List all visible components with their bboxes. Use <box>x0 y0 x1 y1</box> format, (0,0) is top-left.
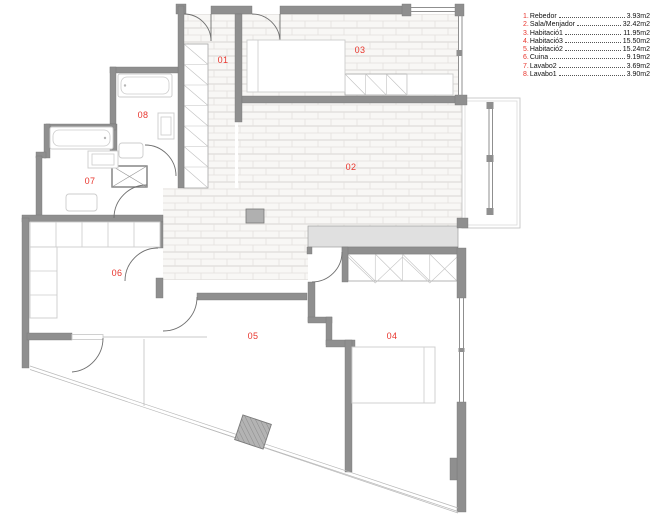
sink-lavabo1 <box>158 113 174 139</box>
legend-leader-dots <box>565 34 621 35</box>
legend: 1.Rebedor3.93m22.Sala/Menjador32.42m23.H… <box>523 13 650 79</box>
door-habitacio2 <box>163 297 197 331</box>
glazing-mullion-1 <box>487 102 494 109</box>
wall-col-e2 <box>457 218 468 228</box>
legend-leader-dots <box>559 67 625 68</box>
pillar-sala <box>246 209 264 223</box>
wall-04-right-upper <box>457 248 466 298</box>
legend-item-area: 9.19m2 <box>627 54 650 62</box>
room-label-06: 06 <box>112 268 123 278</box>
legend-item-area: 15.24m2 <box>623 46 650 54</box>
legend-row: 5.Habitació215.24m2 <box>523 46 650 54</box>
room-label-07: 07 <box>85 176 96 186</box>
legend-item-area: 3.69m2 <box>627 63 650 71</box>
legend-item-name: Lavabo1 <box>530 71 557 79</box>
room-label-08: 08 <box>138 110 149 120</box>
window-06-sill <box>72 335 103 340</box>
wall-08-top <box>110 67 178 73</box>
legend-leader-dots <box>565 50 621 51</box>
door-lavabo1 <box>145 145 176 176</box>
wall-06-top <box>22 215 163 222</box>
door-gallery <box>72 338 103 372</box>
wall-06-left <box>22 218 29 368</box>
wall-band-stub <box>307 247 312 254</box>
legend-item-number: 5. <box>523 46 529 54</box>
legend-leader-dots <box>559 75 625 76</box>
legend-item-area: 11.95m2 <box>623 30 650 38</box>
legend-item-name: Lavabo2 <box>530 63 557 71</box>
glazing-mullion-2 <box>487 155 494 162</box>
sink-lavabo2 <box>88 151 118 168</box>
legend-item-name: Habitació3 <box>530 38 563 46</box>
legend-item-name: Rebedor <box>530 13 557 21</box>
wall-04-right-lower <box>457 402 466 512</box>
bed-habitacio3 <box>352 347 435 403</box>
wall-06-right-b <box>156 278 163 298</box>
wall-05-top <box>197 293 307 300</box>
floor-tiles-corridor <box>208 44 235 188</box>
toilet-lavabo1 <box>119 143 143 158</box>
legend-item-number: 2. <box>523 21 529 29</box>
floor-tiles-passage <box>163 226 308 280</box>
wall-vestibule-left <box>308 282 315 322</box>
closet-rebedor <box>184 44 208 188</box>
wall-band-main <box>342 247 458 254</box>
room-label-02: 02 <box>346 162 357 172</box>
legend-item-area: 3.90m2 <box>627 71 650 79</box>
legend-row: 1.Rebedor3.93m2 <box>523 13 650 21</box>
legend-item-area: 32.42m2 <box>623 21 650 29</box>
wall-top-1 <box>211 6 252 14</box>
wall-col-ne <box>455 4 464 16</box>
bed-habitacio1 <box>247 40 345 92</box>
floor-tiles-rebedor <box>184 14 235 44</box>
wall-08-left <box>110 67 116 129</box>
window-top <box>411 8 455 12</box>
floor-plan-page: 0102030405060708 1.Rebedor3.93m22.Sala/M… <box>0 0 655 516</box>
bathtub-lavabo1 <box>118 74 172 97</box>
legend-item-name: Sala/Menjador <box>530 21 575 29</box>
bathtub-lavabo2 <box>50 127 113 149</box>
legend-row: 2.Sala/Menjador32.42m2 <box>523 21 650 29</box>
legend-rows: 1.Rebedor3.93m22.Sala/Menjador32.42m23.H… <box>523 13 650 79</box>
legend-item-name: Habitació1 <box>530 30 563 38</box>
legend-row: 8.Lavabo13.90m2 <box>523 71 650 79</box>
closet-habitacio1 <box>345 74 453 95</box>
legend-item-name: Habitació2 <box>530 46 563 54</box>
floor-tiles-sala <box>238 103 488 226</box>
floor-tiles-hall <box>163 188 238 226</box>
wall-col-e1 <box>455 95 467 105</box>
wall-vestibule-right <box>342 247 348 282</box>
wall-col-top <box>402 4 411 16</box>
legend-leader-dots <box>550 58 625 59</box>
service-shaft <box>112 166 147 187</box>
legend-leader-dots <box>565 42 621 43</box>
glazing-mullion-3 <box>487 208 494 215</box>
legend-leader-dots <box>559 17 625 18</box>
wall-04-pilaster <box>450 458 457 480</box>
legend-item-number: 1. <box>523 13 529 21</box>
legend-leader-dots <box>577 25 621 26</box>
door-cuina <box>125 248 158 281</box>
legend-item-number: 3. <box>523 30 529 38</box>
sala-low-cabinet <box>308 226 458 247</box>
room-label-04: 04 <box>387 331 398 341</box>
wall-06-bottom <box>27 333 72 340</box>
legend-row: 7.Lavabo23.69m2 <box>523 63 650 71</box>
room-label-01: 01 <box>218 55 229 65</box>
legend-item-number: 8. <box>523 71 529 79</box>
legend-item-number: 6. <box>523 54 529 62</box>
wall-top-2 <box>280 6 404 14</box>
door-lavabo2 <box>114 185 147 218</box>
window-mullion <box>457 50 463 56</box>
legend-row: 3.Habitació111.95m2 <box>523 30 650 38</box>
legend-row: 4.Habitació315.50m2 <box>523 38 650 46</box>
toilet-lavabo2 <box>66 194 97 211</box>
door-vestibule <box>312 252 342 282</box>
legend-item-number: 4. <box>523 38 529 46</box>
wall-03-02 <box>242 96 458 103</box>
wall-corridor-left <box>178 6 184 188</box>
window-04-mullion <box>459 348 465 352</box>
room-label-03: 03 <box>355 45 366 55</box>
room-label-05: 05 <box>248 331 259 341</box>
wall-04-05 <box>345 340 352 472</box>
legend-item-area: 15.50m2 <box>623 38 650 46</box>
legend-item-area: 3.93m2 <box>627 13 650 21</box>
legend-item-number: 7. <box>523 63 529 71</box>
legend-item-name: Cuina <box>530 54 548 62</box>
wall-01-03 <box>235 14 242 122</box>
closet-habitacio3 <box>348 254 457 283</box>
kitchen-counter <box>30 222 160 318</box>
wall-07-left-lower <box>36 156 42 216</box>
legend-row: 6.Cuina9.19m2 <box>523 54 650 62</box>
